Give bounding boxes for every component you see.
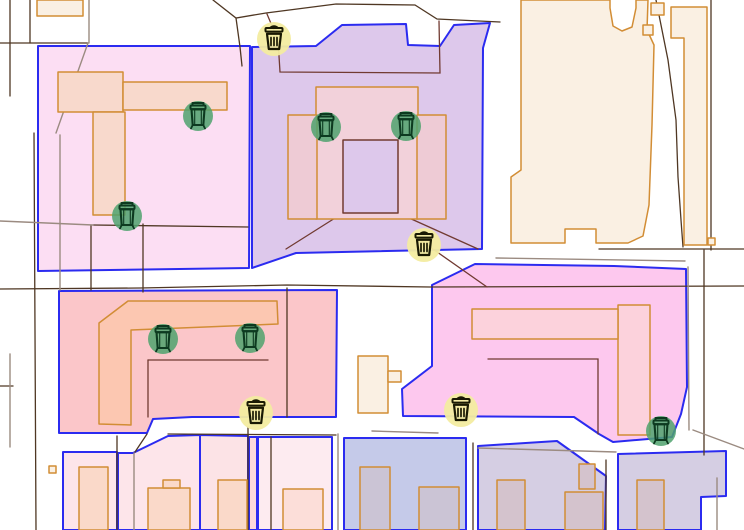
building [358,356,388,413]
building [708,238,715,245]
waste-disposal-marker[interactable] [112,201,142,231]
building-courtyard [343,140,398,213]
parcel-line [213,0,500,22]
waste-disposal-marker[interactable] [391,111,421,141]
waste-basket-marker[interactable] [444,393,478,427]
waste-basket-marker[interactable] [257,22,291,56]
building [163,480,180,488]
parcel-line [372,431,438,433]
parcel-line [496,258,685,261]
building [218,480,247,530]
waste-basket-marker[interactable] [239,396,273,430]
building [79,467,108,530]
map-viewport[interactable] [0,0,744,530]
waste-disposal-marker[interactable] [183,101,213,131]
building [579,464,595,489]
map-canvas[interactable] [0,0,744,530]
zone-mauve-bottom-2[interactable] [618,451,726,530]
building [58,72,123,112]
building [417,115,446,219]
building [511,0,654,243]
waste-basket-marker[interactable] [407,228,441,262]
parcel-line [34,133,36,530]
waste-disposal-marker[interactable] [311,112,341,142]
building [360,467,390,530]
building [497,480,525,530]
building [148,488,190,530]
building [419,487,459,530]
building [651,3,664,15]
building [283,489,323,530]
building [472,309,618,339]
waste-disposal-marker[interactable] [646,416,676,446]
building [637,480,664,530]
building [93,112,125,215]
waste-disposal-marker[interactable] [235,323,265,353]
building [618,305,650,435]
zone-parcel-p4[interactable] [249,437,257,530]
waste-disposal-marker[interactable] [148,324,178,354]
building [37,0,83,16]
building [643,25,653,35]
parcel-line [693,430,744,449]
building [123,82,227,110]
building [49,466,56,473]
building [388,371,401,382]
parcel-line [688,267,689,430]
building [565,492,603,530]
